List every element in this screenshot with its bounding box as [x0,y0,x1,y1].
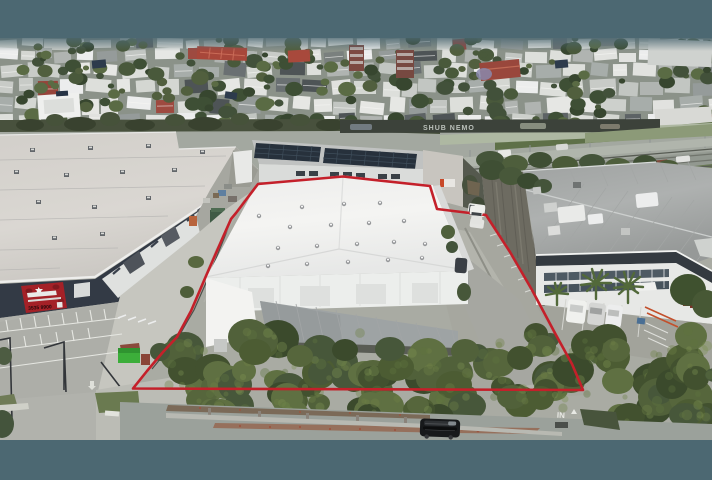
svg-text:IN: IN [557,411,566,420]
svg-text:SHUB NEMO: SHUB NEMO [423,125,475,132]
